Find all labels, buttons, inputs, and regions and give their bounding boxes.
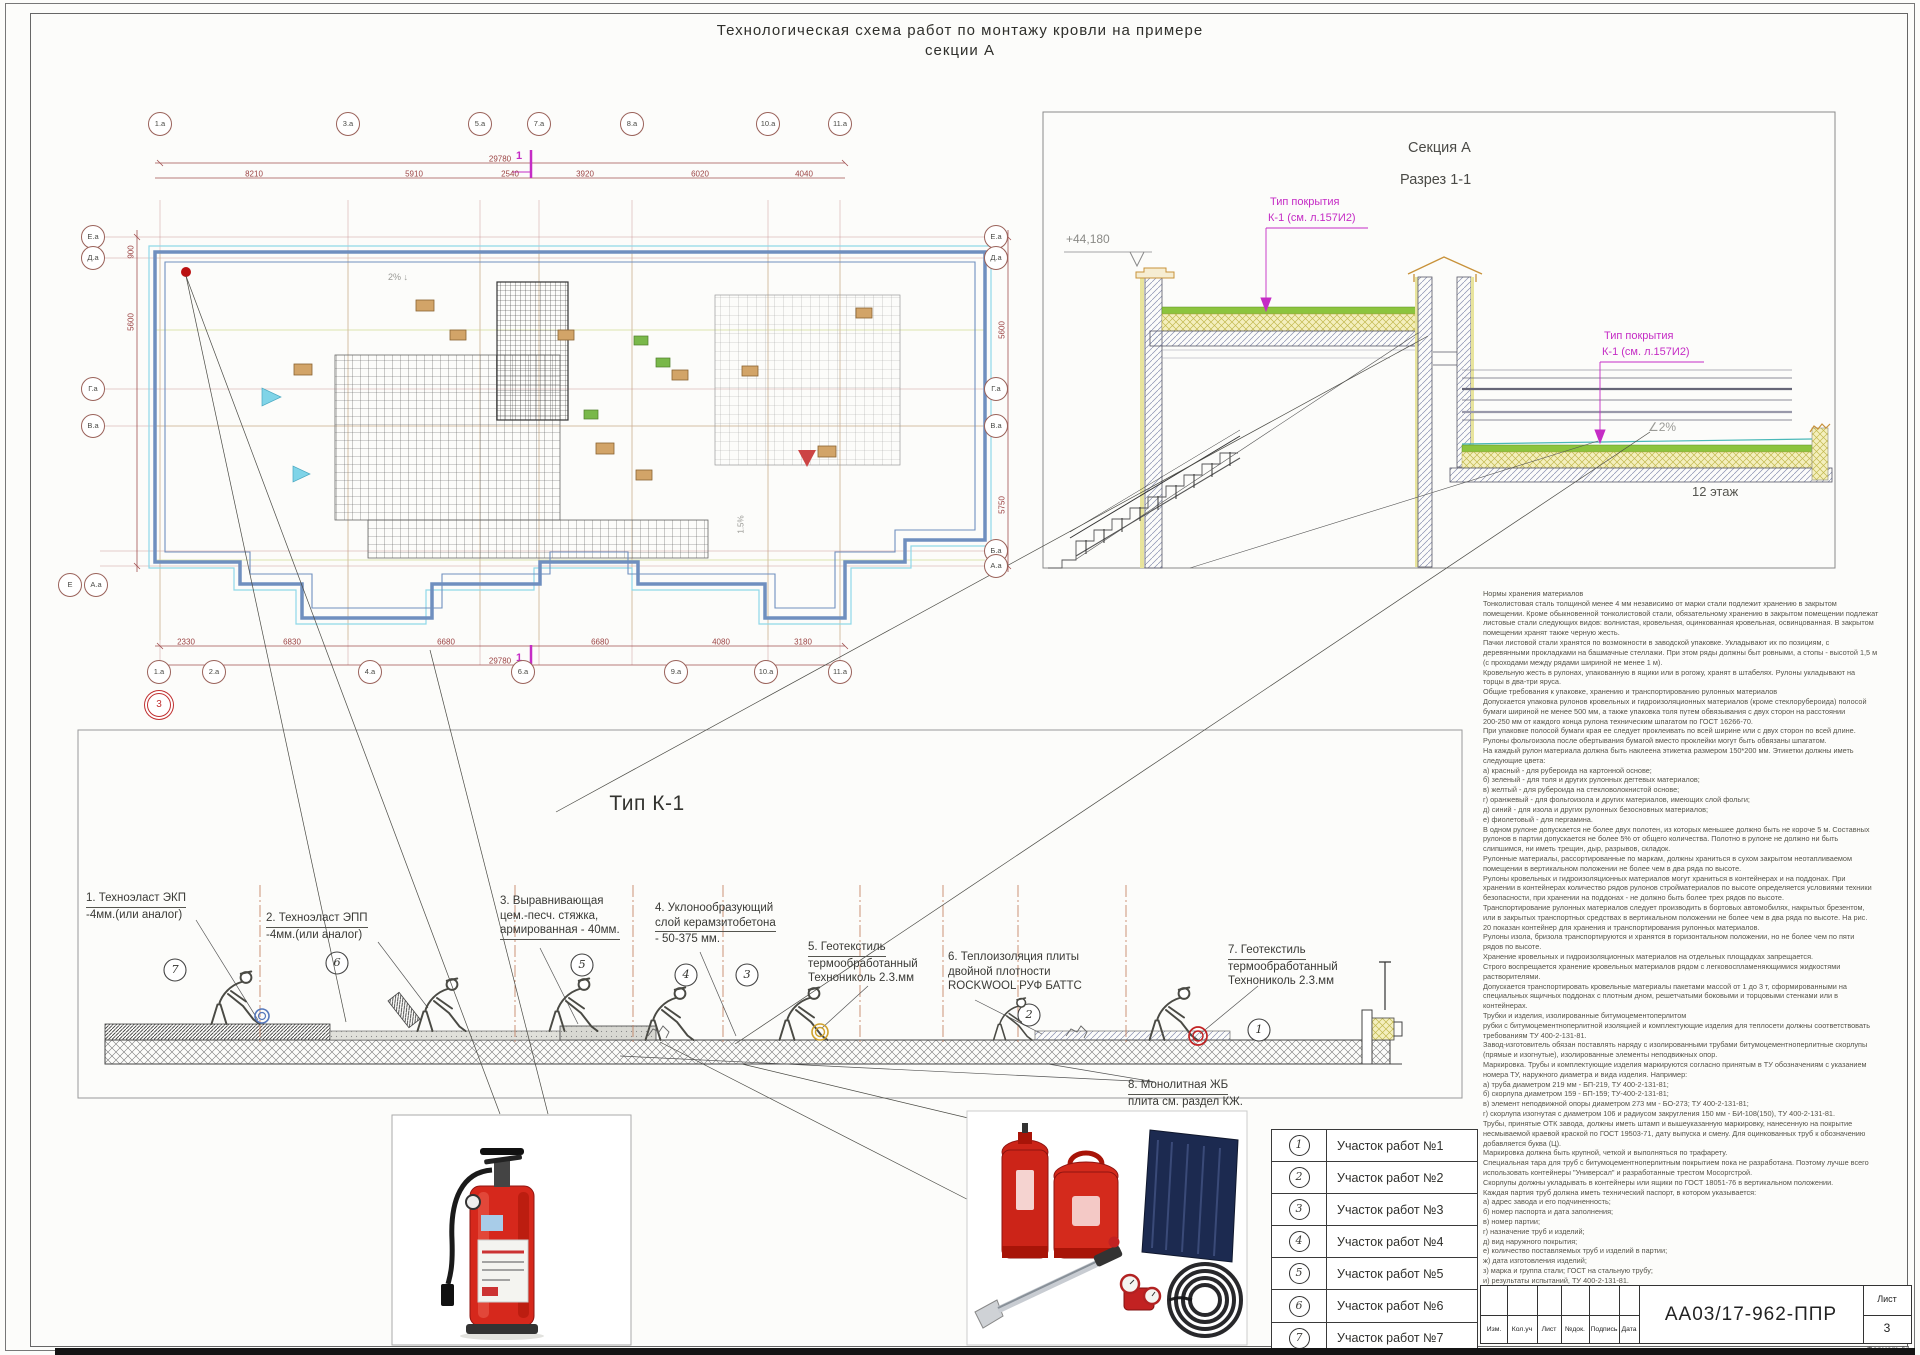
legend-area-number: 3 <box>1272 1194 1327 1225</box>
sheet-title-line2: секции А <box>0 42 1920 59</box>
area-mark: 6 <box>326 952 348 974</box>
dim-right-1: 5750 <box>998 496 1007 514</box>
axis-top-5.а: 5.а <box>468 112 492 136</box>
axis-bottom-6.а: 6.а <box>511 660 535 684</box>
worker-figure <box>550 979 598 1032</box>
axis-left-Г.а: Г.а <box>81 377 105 401</box>
dim-bottom-3: 6680 <box>591 638 609 647</box>
legend-area-number: 2 <box>1272 1162 1327 1193</box>
work-areas-legend: 1Участок работ №12Участок работ №23Участ… <box>1271 1129 1478 1349</box>
axis-corner-E: Е <box>58 573 82 597</box>
legend-row: 4Участок работ №4 <box>1272 1226 1477 1258</box>
elevation-mark: +44,180 <box>1066 232 1110 246</box>
axis-right-А.а: А.а <box>984 554 1008 578</box>
section-view-name: Разрез 1-1 <box>1400 172 1471 188</box>
axis-bottom-4.а: 4.а <box>358 660 382 684</box>
plan-slope-label-2: 1.5% <box>737 515 746 533</box>
dim-bottom-5: 3180 <box>794 638 812 647</box>
axis-top-11.а: 11.а <box>828 112 852 136</box>
sheet-title-line1: Технологическая схема работ по монтажу к… <box>0 22 1920 39</box>
annotation-7: 7. ГеотекстильтермообработанныйТехнонико… <box>1228 943 1338 989</box>
annotation-5: 5. ГеотекстильтермообработанныйТехнонико… <box>808 940 918 986</box>
scan-edge-strip <box>55 1348 1915 1355</box>
axis-top-1.а: 1.а <box>148 112 172 136</box>
axis-top-3.а: 3.а <box>336 112 360 136</box>
axis-corner-Aa: А.а <box>84 573 108 597</box>
detail-mark-3: 3 <box>147 693 171 717</box>
annotation-3: 3. Выравнивающаяцем.-песч. стяжка,армиро… <box>500 894 620 940</box>
dim-bottom-1: 6830 <box>283 638 301 647</box>
plan-start-point-marker <box>181 267 191 277</box>
axis-right-Д.а: Д.а <box>984 246 1008 270</box>
cover-type-label-2-line1: Тип покрытия <box>1604 330 1673 342</box>
section-name: Секция А <box>1408 140 1471 156</box>
cut-mark-top: 1 <box>516 150 522 162</box>
dim-bottom-4: 4080 <box>712 638 730 647</box>
axis-top-10.а: 10.а <box>756 112 780 136</box>
dim-top-4: 6020 <box>691 170 709 179</box>
legend-area-label: Участок работ №5 <box>1327 1267 1477 1281</box>
area-mark: 3 <box>736 964 758 986</box>
detail-title: Тип К-1 <box>577 792 717 816</box>
document-number: АА03/17-962-ППР <box>1639 1286 1863 1343</box>
sheet-word-label: Лист <box>1877 1294 1897 1304</box>
cover-type-label-1-line1: Тип покрытия <box>1270 196 1339 208</box>
legend-area-number: 1 <box>1272 1130 1327 1161</box>
legend-row: 1Участок работ №1 <box>1272 1130 1477 1162</box>
annotation-1: 1. Техноэласт ЭКП-4мм.(или аналог) <box>86 891 186 922</box>
dim-left-1: 5600 <box>127 313 136 331</box>
legend-area-label: Участок работ №2 <box>1327 1171 1477 1185</box>
drawing-sheet: Технологическая схема работ по монтажу к… <box>0 0 1920 1355</box>
annotation-8: 8. Монолитная ЖБплита см. раздел КЖ. <box>1128 1078 1243 1109</box>
dim-bottom-2: 6680 <box>437 638 455 647</box>
area-mark: 5 <box>571 954 593 976</box>
axis-bottom-2.а: 2.а <box>202 660 226 684</box>
dim-top-3: 3920 <box>576 170 594 179</box>
area-mark: 4 <box>675 964 697 986</box>
plan-slope-label: 2% ↓ <box>388 272 408 282</box>
legend-area-label: Участок работ №6 <box>1327 1299 1477 1313</box>
title-block: АА03/17-962-ППР Лист 3 Изм.Кол.учЛист№до… <box>1480 1285 1912 1344</box>
legend-area-label: Участок работ №1 <box>1327 1139 1477 1153</box>
legend-area-number: 4 <box>1272 1226 1327 1257</box>
dim-top-0: 8210 <box>245 170 263 179</box>
legend-row: 6Участок работ №6 <box>1272 1290 1477 1322</box>
dim-left-0: 900 <box>127 245 136 258</box>
axis-bottom-11.а: 11.а <box>828 660 852 684</box>
gas-torch-equipment-photo <box>967 1111 1247 1345</box>
legend-area-number: 5 <box>1272 1258 1327 1289</box>
annotation-2: 2. Техноэласт ЭПП-4мм.(или аналог) <box>266 911 368 942</box>
title-block-col-1: Кол.уч <box>1512 1326 1532 1333</box>
section-slope-label: ∠2% <box>1648 420 1676 434</box>
axis-left-В.а: В.а <box>81 414 105 438</box>
cover-type-label-1-line2: К-1 (см. л.157И2) <box>1268 212 1356 224</box>
cover-type-label-2-line2: К-1 (см. л.157И2) <box>1602 346 1690 358</box>
dim-bottom-total: 29780 <box>489 657 511 666</box>
annotation-4: 4. Уклонообразующийслой керамзитобетона-… <box>655 901 776 947</box>
title-block-col-0: Изм. <box>1487 1326 1502 1333</box>
area-mark: 7 <box>164 959 186 981</box>
axis-bottom-10.а: 10.а <box>754 660 778 684</box>
floor-label: 12 этаж <box>1692 484 1738 499</box>
legend-area-number: 6 <box>1272 1290 1327 1321</box>
dim-top-2: 2540 <box>501 170 519 179</box>
dim-top-5: 4040 <box>795 170 813 179</box>
title-block-col-2: Лист <box>1542 1326 1557 1333</box>
legend-area-label: Участок работ №7 <box>1327 1331 1477 1345</box>
axis-bottom-1.а: 1.а <box>147 660 171 684</box>
legend-row: 5Участок работ №5 <box>1272 1258 1477 1290</box>
dim-top-1: 5910 <box>405 170 423 179</box>
legend-area-label: Участок работ №4 <box>1327 1235 1477 1249</box>
fire-extinguisher-photo <box>392 1115 631 1345</box>
legend-row: 3Участок работ №3 <box>1272 1194 1477 1226</box>
axis-right-В.а: В.а <box>984 414 1008 438</box>
area-mark: 2 <box>1018 1004 1040 1026</box>
dim-bottom-0: 2330 <box>177 638 195 647</box>
legend-row: 2Участок работ №2 <box>1272 1162 1477 1194</box>
axis-right-Г.а: Г.а <box>984 377 1008 401</box>
axis-top-8.а: 8.а <box>620 112 644 136</box>
title-block-col-3: №док. <box>1565 1326 1585 1333</box>
legend-area-label: Участок работ №3 <box>1327 1203 1477 1217</box>
title-block-col-4: Подпись <box>1591 1326 1618 1333</box>
sheet-number: 3 <box>1884 1321 1891 1335</box>
dim-right-0: 5600 <box>998 321 1007 339</box>
worker-figure <box>212 972 260 1025</box>
storage-norms-text: Нормы хранения материалов Тонколистовая … <box>1483 589 1905 1286</box>
axis-top-7.а: 7.а <box>527 112 551 136</box>
worker-figure <box>418 979 466 1032</box>
axis-left-Д.а: Д.а <box>81 246 105 270</box>
area-mark: 1 <box>1248 1019 1270 1041</box>
title-block-col-5: Дата <box>1621 1326 1636 1333</box>
axis-bottom-9.а: 9.а <box>664 660 688 684</box>
annotation-6: 6. Теплоизоляция плитыдвойной плотностиR… <box>948 950 1082 994</box>
worker-figure <box>780 988 828 1041</box>
dim-top-total: 29780 <box>489 155 511 164</box>
